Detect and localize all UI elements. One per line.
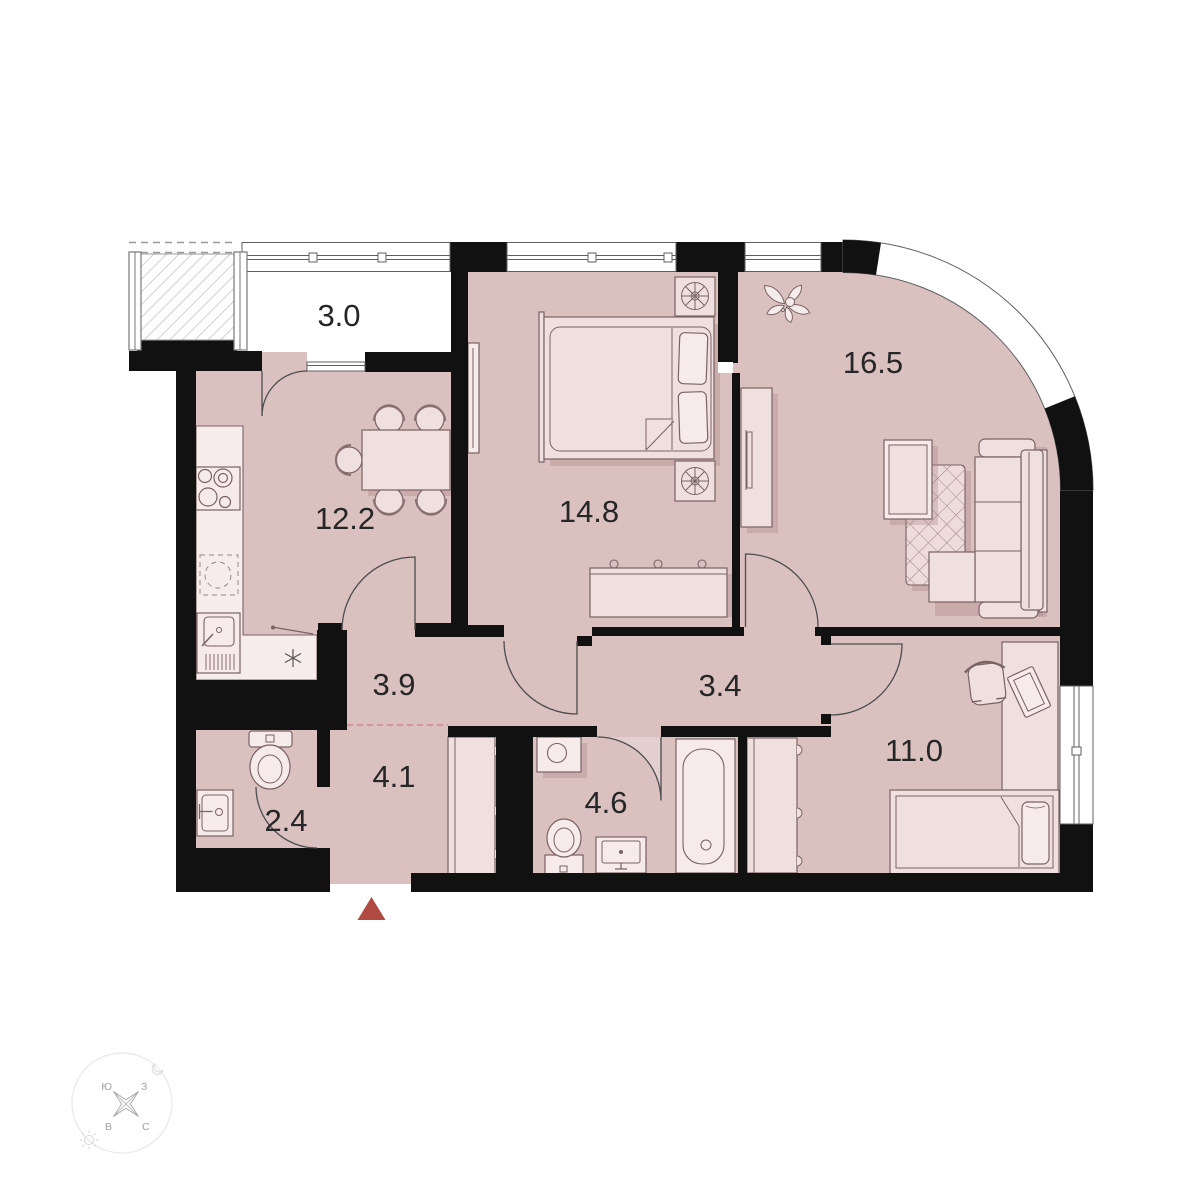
svg-text:3.4: 3.4 <box>698 668 741 703</box>
svg-text:С: С <box>142 1121 150 1133</box>
svg-text:4.1: 4.1 <box>372 759 415 794</box>
svg-text:11.0: 11.0 <box>885 733 943 768</box>
svg-text:В: В <box>105 1121 112 1133</box>
svg-text:3.9: 3.9 <box>372 667 415 702</box>
svg-text:3.0: 3.0 <box>317 298 360 333</box>
svg-text:З: З <box>141 1081 147 1093</box>
svg-text:12.2: 12.2 <box>315 501 375 536</box>
svg-text:16.5: 16.5 <box>843 345 903 380</box>
svg-text:2.4: 2.4 <box>264 803 307 838</box>
svg-text:Ю: Ю <box>101 1081 112 1093</box>
svg-text:4.6: 4.6 <box>584 785 627 820</box>
svg-text:14.8: 14.8 <box>559 494 619 529</box>
